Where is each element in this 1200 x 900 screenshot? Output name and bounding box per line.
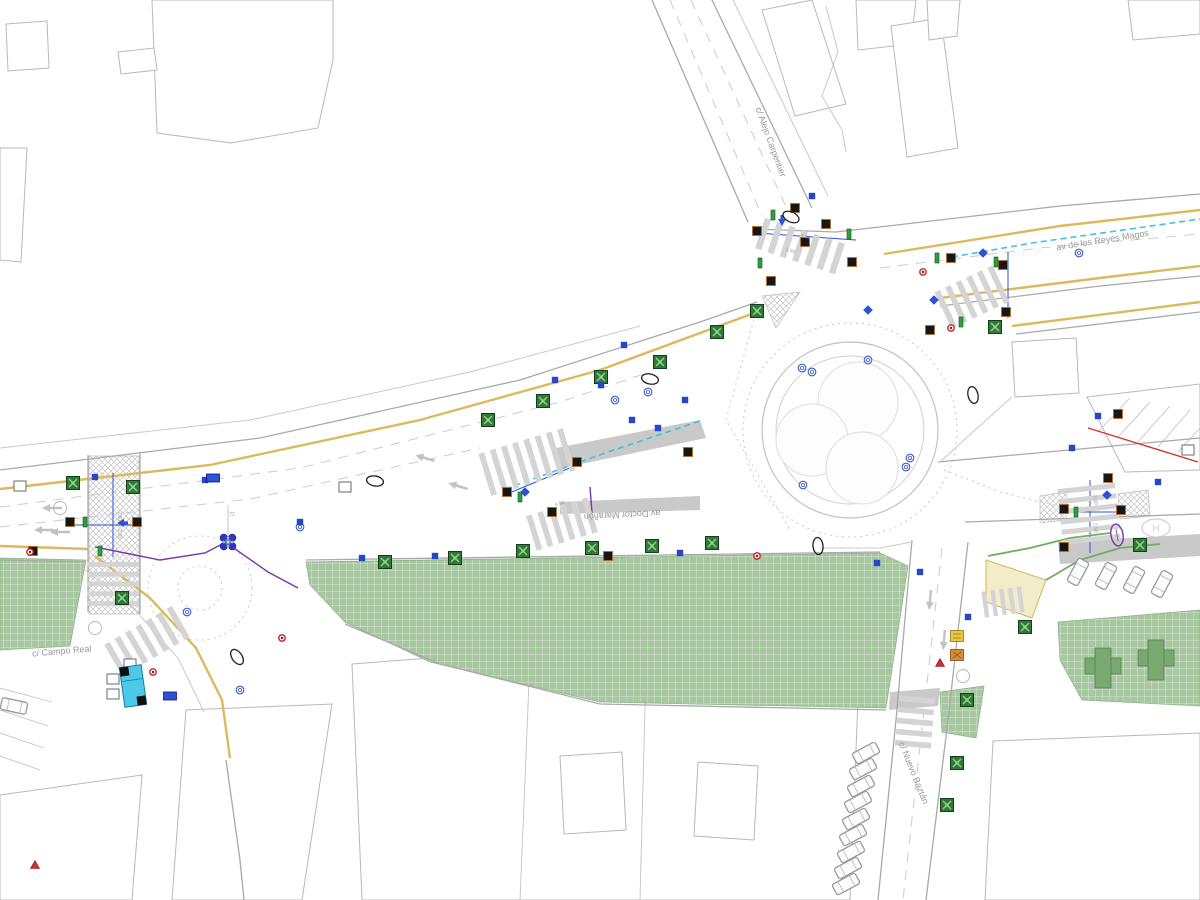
street-label: c/ Alejo Carpentier [754,106,789,179]
building-outline [0,148,27,262]
signal-post-icon [98,546,102,556]
building-outline [0,775,142,900]
traffic-signal-icon [1117,506,1126,515]
manhole-icon [611,396,619,404]
tree-planter-icon [654,356,667,369]
lane-arrow-icon [42,504,62,512]
parked-car [1151,570,1174,599]
signal-post-icon [771,210,775,220]
signal-post-icon [959,317,963,327]
tree-planter-icon [116,592,129,605]
cabinet-box [107,689,119,699]
mini-roundabout-center [178,566,222,610]
tree-planter-icon [127,481,140,494]
signal-post-icon [994,257,998,267]
utility-marker-icon [629,417,635,423]
building-outline [1012,338,1079,397]
utility-marker-icon [621,342,627,348]
signal-post-icon [847,229,851,239]
utility-marker-icon [677,550,683,556]
traffic-signal-icon [1104,474,1113,483]
tree-planter-icon [961,694,974,707]
traffic-plan-page: H c/ Alejo Carpentierav de los Reyes Mag… [0,0,1200,900]
traffic-signal-icon [753,227,762,236]
tree-planter-icon [379,556,392,569]
signal-lamp-icon [27,549,33,555]
utility-marker-icon [598,382,604,388]
road-line [880,234,1200,268]
manhole-icon [864,356,872,364]
hedge [1095,648,1111,688]
bus-shelter [119,665,146,708]
dimension-text: 2.50 [1092,523,1099,534]
road-line [820,542,912,548]
manhole-icon [644,388,652,396]
lane-arrow-icon [925,590,935,611]
traffic-signal-icon [791,204,800,213]
traffic-signal-icon [604,552,613,561]
control-box [164,692,177,700]
hedge [1148,640,1164,680]
dimension-text: 2.00 [116,529,122,539]
road-line [0,326,640,448]
building-outline [927,0,960,40]
utility-marker-icon [917,569,923,575]
parked-car [1123,566,1146,595]
signal-lamp-icon [948,325,954,331]
signal-post-icon [935,253,939,263]
tree-planter-icon [449,552,462,565]
curb-line [0,546,88,549]
tree-planter-icon [537,395,550,408]
traffic-signal-icon [999,261,1008,270]
traffic-signal-icon [926,326,935,335]
utility-marker-icon [1155,479,1161,485]
lane-arrow-icon [34,526,54,534]
cabinet-box [339,482,351,492]
cabinet-box [1182,445,1194,455]
building-outline [172,704,332,900]
traffic-signal-icon [947,254,956,263]
lane-arrow-icon [414,451,435,464]
loop-detector [966,386,979,405]
tree-planter-icon [751,305,764,318]
manhole-icon [236,686,244,694]
building-outline [1128,0,1200,40]
tree-planter-icon [951,757,964,770]
road-line [652,0,748,222]
crosswalk [755,218,845,274]
building-detail-line [0,733,44,748]
loop-detector [366,475,384,488]
building-outline [762,0,846,116]
tree-planter-icon [941,799,954,812]
dimension-text: 72 [229,512,235,518]
signal-wire-line [507,465,577,494]
tree-planter-icon [595,371,608,384]
lane-arrow-icon [939,630,949,651]
signal-post-icon [758,258,762,268]
building-outline [985,733,1200,900]
traffic-signal-icon [1114,410,1123,419]
signal-post-icon [1074,507,1078,517]
building-outline [560,752,626,834]
manhole-icon [183,608,191,616]
signal-lamp-icon [920,269,926,275]
bus-stop-marking [1142,519,1170,537]
tree-planter-icon [706,537,719,550]
traffic-signal-icon [133,518,142,527]
traffic-signal-icon [548,508,557,517]
signal-post-icon [518,492,522,502]
manhole-icon [906,454,914,462]
dimension-text: 3.00 [1092,495,1099,506]
cable-line [228,544,298,588]
traffic-signal-icon [767,277,776,286]
utility-marker-icon [1069,445,1075,451]
tree-planter-icon [67,477,80,490]
warning-marker-icon [936,659,945,667]
parked-car [0,697,28,714]
pavement-circle [957,670,970,683]
loop-detector [641,372,660,385]
traffic-signal-icon [848,258,857,267]
crosswalk [104,606,190,676]
manhole-icon [799,481,807,489]
control-box [207,474,220,482]
building-outline [694,762,758,840]
detector-marker-icon [863,305,873,315]
manhole-icon [902,463,910,471]
utility-marker-icon [874,560,880,566]
hatched-island [762,292,800,328]
tree-planter-icon [1134,539,1147,552]
manhole-icon [1075,249,1083,257]
building-outline [6,21,49,71]
dimension-text: 2.50 [116,511,122,521]
detector-marker-icon [978,248,988,258]
tree-planter-icon [646,540,659,553]
cabinet-box [107,674,119,684]
traffic-plan-canvas[interactable]: H c/ Alejo Carpentierav de los Reyes Mag… [0,0,1200,900]
building-outline [152,0,333,143]
parked-car [1095,562,1118,591]
traffic-signal-icon [573,458,582,467]
signal-lamp-icon [754,553,760,559]
utility-marker-icon [552,377,558,383]
utility-cabinet-orange [951,650,964,661]
traffic-signal-icon [1060,505,1069,514]
green-area [0,558,86,650]
utility-marker-icon [809,193,815,199]
signal-post-icon [83,517,87,527]
tree-planter-icon [1019,621,1032,634]
traffic-signal-icon [822,220,831,229]
utility-marker-icon [92,474,98,480]
utility-marker-icon [682,397,688,403]
curb-line [1012,302,1200,326]
green-area [1058,610,1200,706]
building-detail-line [0,756,40,770]
tree-planter-icon [989,321,1002,334]
utility-marker-icon [297,519,303,525]
traffic-signal-icon [684,448,693,457]
signal-lamp-icon [279,635,285,641]
utility-marker-icon [359,555,365,561]
building-outline [891,18,958,157]
building-outline [1087,384,1200,472]
traffic-signal-icon [1060,543,1069,552]
tree-planter-icon [586,542,599,555]
utility-marker-icon [965,614,971,620]
traffic-signal-icon [503,488,512,497]
road-line [940,397,1012,462]
utility-marker-icon [655,425,661,431]
roundabout-island-lobe [826,432,898,504]
street-label: c/ Nuevo Baztán [897,740,931,805]
traffic-signal-icon [66,518,75,527]
manhole-icon [808,368,816,376]
traffic-signal-icon [1002,308,1011,317]
utility-cabinet-yellow [951,631,964,642]
tree-planter-icon [482,414,495,427]
loop-detector [228,647,246,667]
utility-marker-icon [1095,413,1101,419]
signal-lamp-icon [150,669,156,675]
utility-marker-icon [432,553,438,559]
cabinet-box [14,481,26,491]
tree-planter-icon [517,545,530,558]
tree-planter-icon [711,326,724,339]
lane-arrow-icon [447,479,468,492]
building-outline [118,48,157,74]
pavement-circle [89,622,102,635]
manhole-icon [798,364,806,372]
